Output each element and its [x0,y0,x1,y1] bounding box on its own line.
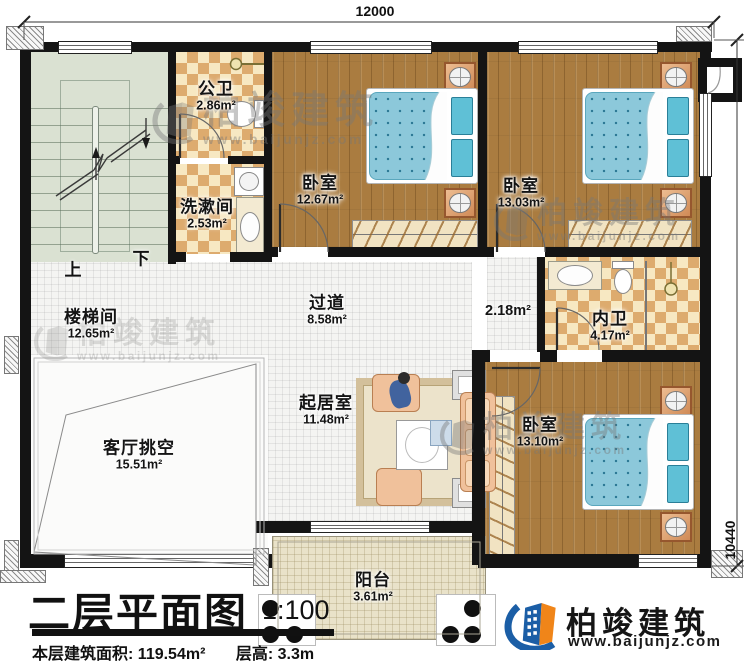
nightstand-icon [660,386,692,416]
wall-mid [602,350,710,362]
armchair-icon [376,468,422,506]
floor-height-value: 3.3m [278,646,314,663]
lamp-icon [665,193,687,213]
lamp-icon [449,193,471,213]
window [518,41,658,54]
room-label-bedroom-top-left: 卧室12.67m² [297,173,344,206]
wall-bath-south [168,252,186,262]
hatch-block [676,26,712,42]
wall-mid [472,350,490,362]
room-label-washroom: 洗漱间2.53m² [180,197,234,230]
blanket-fold-icon [633,418,663,506]
window [310,41,432,54]
room-name: 洗漱间 [180,197,234,216]
room-name: 卧室 [517,415,564,434]
room-name: 阳台 [353,570,393,589]
room-area: 2.86m² [196,99,236,113]
wall-bedroom-divider [478,52,487,257]
column-dot-icon [442,626,459,643]
wall-bath-south [230,252,272,262]
room-label-nook: 2.18m² [485,303,531,319]
lamp-icon [665,391,687,411]
room-area: 12.65m² [64,327,118,341]
room-label-bedroom-bottom: 卧室13.10m² [517,415,564,448]
wall-bath-east [264,52,272,262]
hatch-block [4,336,19,374]
room-area: 11.48m² [299,413,353,427]
room-name: 客厅挑空 [103,438,175,457]
stair-steps [30,108,168,252]
wall-sitting-south [430,521,478,533]
wardrobe-icon [352,220,478,248]
room-label-balcony: 阳台3.61m² [353,570,393,603]
room-area: 13.03m² [498,196,545,210]
stairs-down-label: 下 [133,245,150,270]
room-area: 4.17m² [590,329,630,343]
lamp-icon [665,517,687,537]
room-name: 内卫 [590,309,630,328]
wall-bedroom2-south [487,247,494,257]
nightstand-icon [660,188,692,218]
stairs-up-label: 上 [65,256,82,281]
room-name: 卧室 [297,173,344,192]
dimension-top: 12000 [320,3,430,19]
room-label-hallway: 过道8.58m² [307,293,347,326]
window [699,93,712,177]
person-head-icon [398,372,410,384]
washing-machine-icon [234,167,264,196]
tray-icon [430,420,452,446]
wall-ensuite-west [537,257,545,352]
room-label-public-bath: 公卫2.86m² [196,79,236,112]
room-area: 2.53m² [180,217,234,231]
pillow-icon [667,97,689,135]
hatch-block [253,548,269,586]
bed-icon [582,414,694,510]
brand-website: www.baijunjz.com [568,633,721,650]
wall-bedroom3-west [472,362,485,565]
wall-bath-divider [228,156,264,164]
room-area: 2.18m² [485,303,531,319]
bay-box-inner [707,67,733,93]
pillow-icon [667,465,689,503]
hatch-block [6,26,44,50]
room-label-bedroom-top-right: 卧室13.03m² [498,176,545,209]
room-name: 起居室 [299,393,353,412]
window [638,554,698,568]
wall-stair-east [168,52,176,264]
stair-rail [92,106,99,254]
lamp-icon [665,67,687,87]
pillow-icon [451,139,473,177]
floor-area-label: 本层建筑面积: [32,646,133,663]
room-name: 楼梯间 [64,307,118,326]
washer-drum-icon [239,172,259,191]
wardrobe-icon [568,220,692,248]
room-label-living-void: 客厅挑空15.51m² [103,438,175,471]
floor-area-info: 本层建筑面积: 119.54m² 层高: 3.3m [32,640,314,663]
blanket-fold-icon [633,92,663,180]
toilet-icon [614,269,632,294]
pillow-icon [667,139,689,177]
room-label-sitting-room: 起居室11.48m² [299,393,353,426]
wall-mid [540,350,557,362]
room-name: 公卫 [196,79,236,98]
window [58,41,132,54]
room-area: 15.51m² [103,458,175,472]
bed-icon [366,88,478,184]
blanket-fold-icon [417,92,447,180]
column-dot-icon [464,626,481,643]
column-dot-icon [464,600,481,617]
wall-bedroom1-south [272,247,278,257]
sink-icon [557,265,593,286]
room-area: 12.67m² [297,193,344,207]
pillow-icon [451,97,473,135]
room-name: 过道 [307,293,347,312]
room-label-ensuite-bath: 内卫4.17m² [590,309,630,342]
room-name: 卧室 [498,176,545,195]
shower-partition [645,261,647,350]
wall-left [20,42,31,568]
sink-icon [240,212,260,242]
sliding-door [310,521,430,533]
room-label-stair-hall: 楼梯间12.65m² [64,307,118,340]
bed-icon [582,88,694,184]
brand-logo-icon [502,596,560,650]
wall-bath-divider [176,156,180,164]
floor-plan: 柏竣建筑www.baijunjz.com 柏竣建筑www.baijunjz.co… [0,0,750,663]
window [64,554,256,568]
dimension-right: 10440 [722,510,738,570]
nightstand-icon [444,188,476,218]
stair-hall-floor [30,52,168,262]
floor-area-value: 119.54m² [138,646,206,663]
wall-bedroom2-south [545,247,710,257]
room-area: 13.10m² [517,435,564,449]
lamp-icon [449,67,471,87]
floor-height-label: 层高: [236,646,273,663]
room-area: 8.58m² [307,313,347,327]
nightstand-icon [660,512,692,542]
wall-sitting-south [256,521,310,533]
wall-bedroom1-south [328,247,478,257]
title-scale: 1:100 [262,595,330,626]
pillow-icon [667,423,689,461]
title-underline [32,629,334,636]
toilet-tank-icon [612,261,634,269]
room-area: 3.61m² [353,590,393,604]
